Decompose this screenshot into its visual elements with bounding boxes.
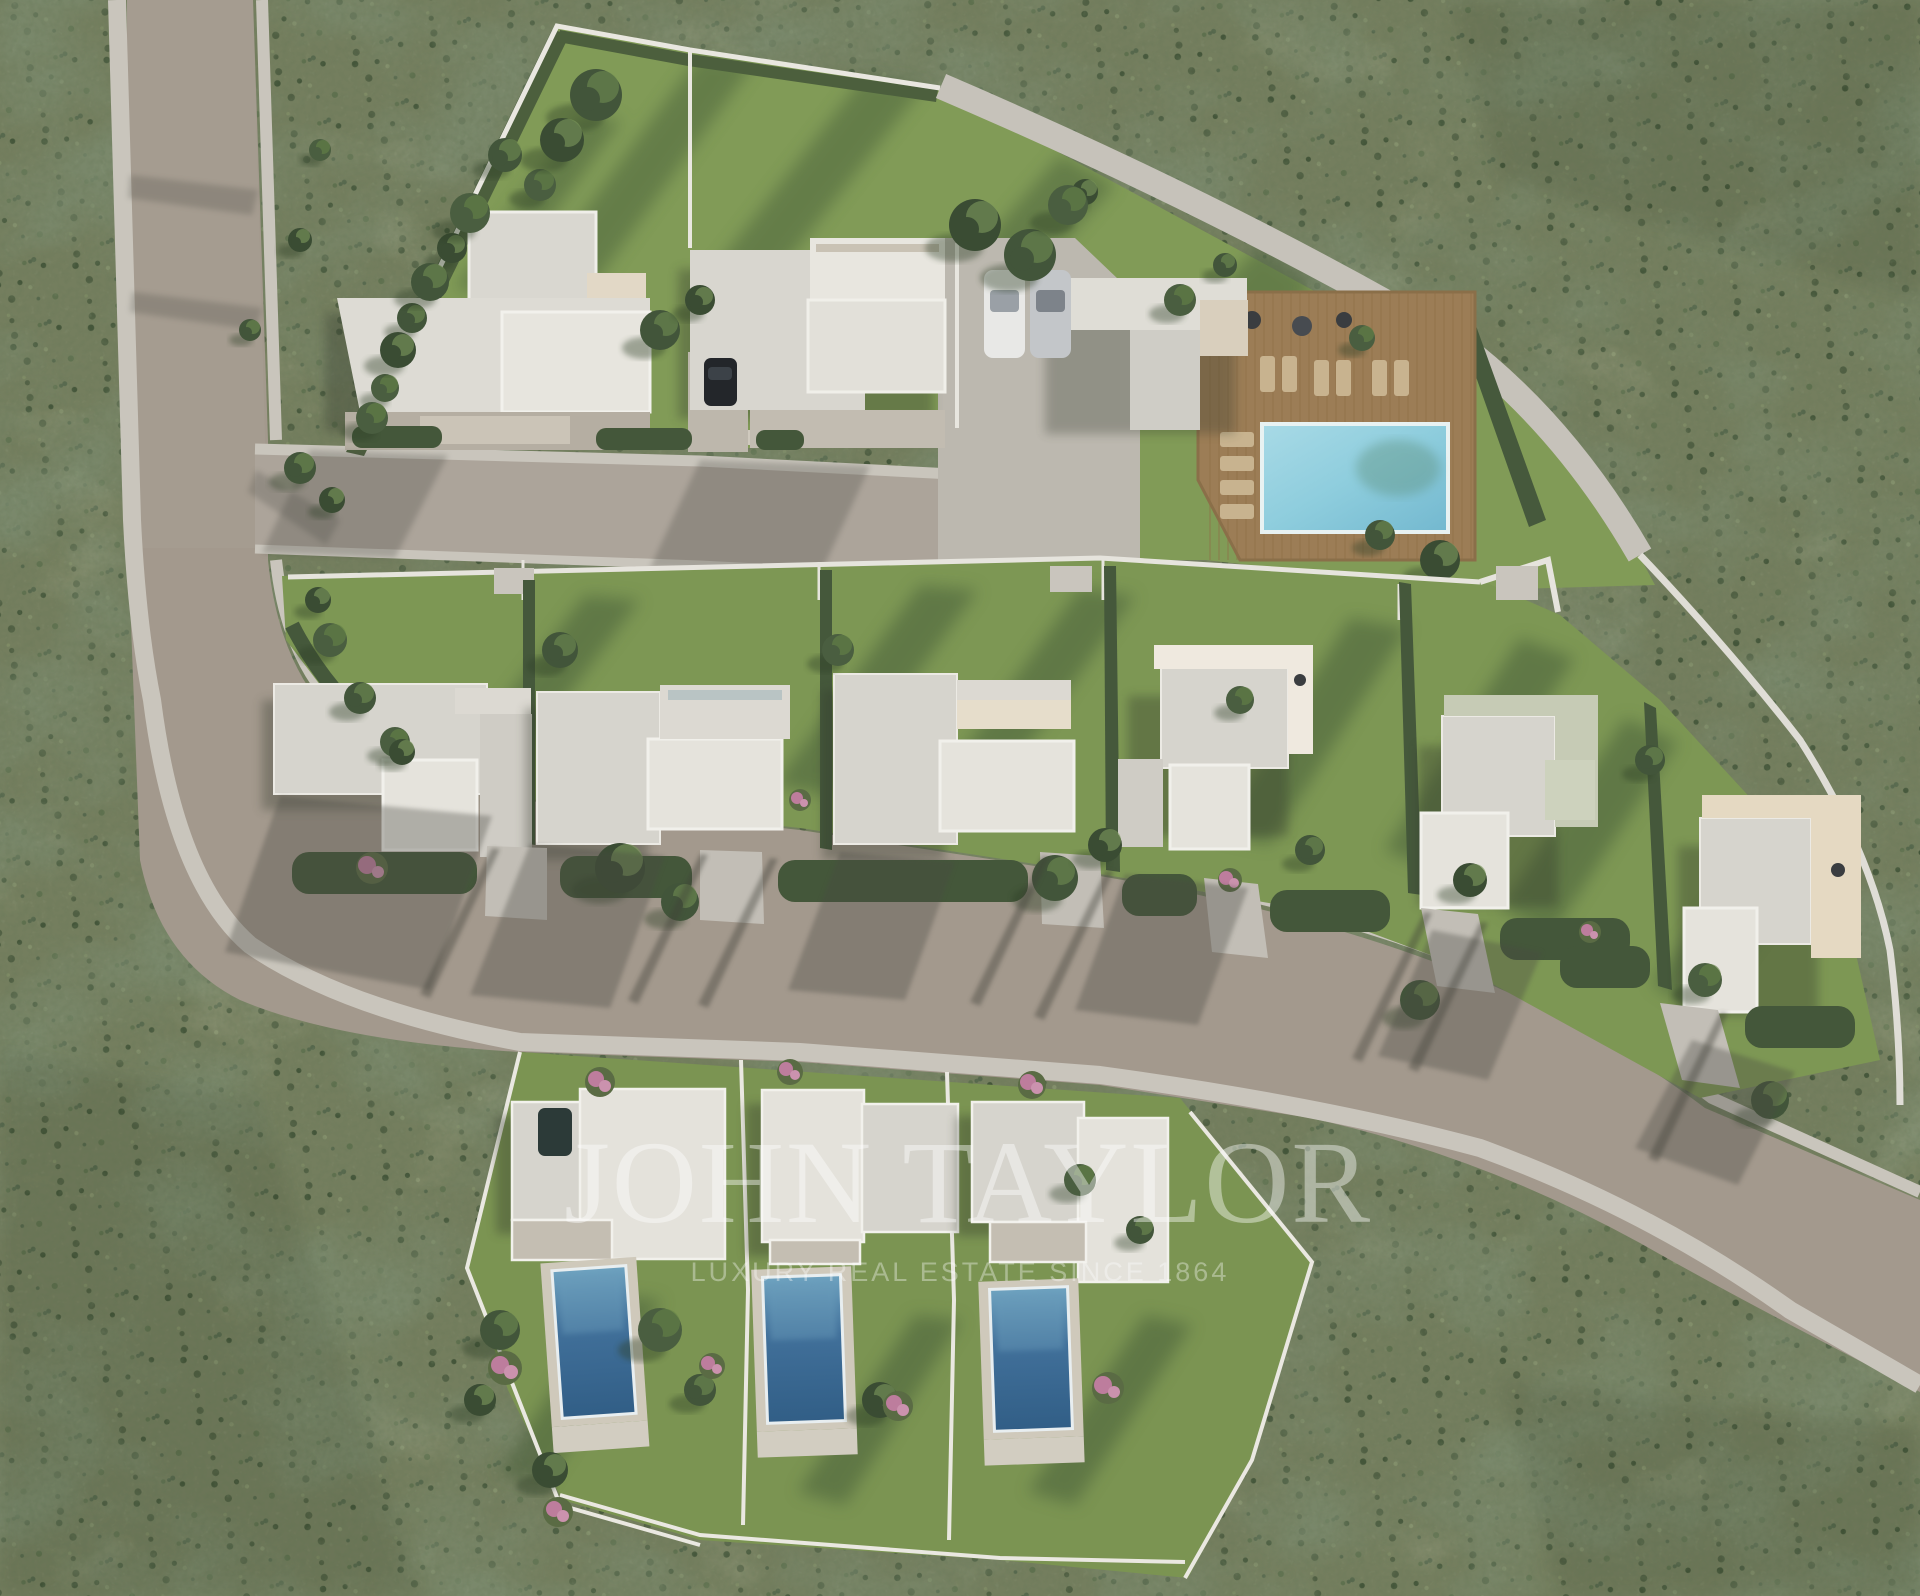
svg-text:LUXURY REAL ESTATE SINCE 1864: LUXURY REAL ESTATE SINCE 1864	[691, 1257, 1230, 1287]
svg-text:JOHN TAYLOR: JOHN TAYLOR	[564, 1117, 1372, 1248]
